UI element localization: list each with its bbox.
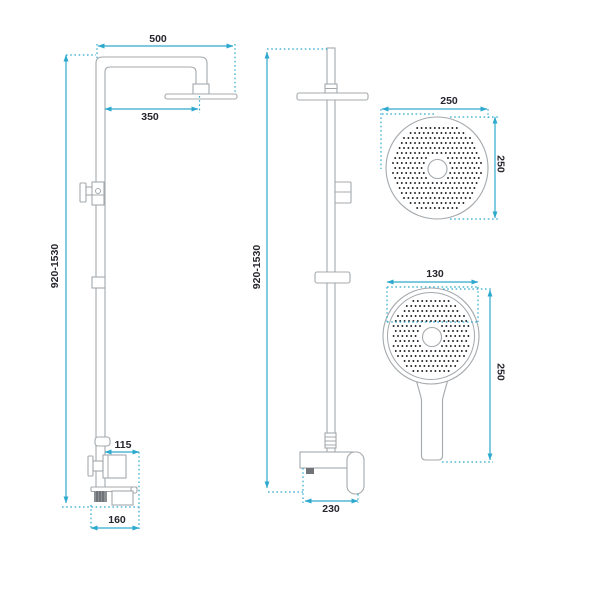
- dim-head-width-label: 250: [440, 96, 458, 107]
- front-view: [297, 48, 368, 494]
- shower-head-plate-side: [165, 94, 237, 99]
- dim-side-500-label: 500: [149, 34, 167, 45]
- pipe-connector-side: [92, 277, 105, 288]
- technical-drawing: [0, 0, 600, 600]
- mixer-knob-cap-side: [88, 456, 93, 476]
- slider-knob-cap-side: [80, 183, 86, 202]
- spout-outlet-front: [306, 468, 314, 474]
- hand-shower-view: [383, 288, 479, 460]
- mixer-knob-stem-side: [93, 461, 103, 471]
- dim-side-160-label: 160: [108, 515, 126, 526]
- dim-side-350-label: 350: [141, 112, 159, 123]
- shower-head-plate-front: [297, 93, 368, 100]
- arm-nut-side: [193, 84, 209, 94]
- dim-side-115-label: 115: [115, 440, 132, 451]
- dim-hand-length-label: 250: [495, 363, 506, 381]
- dim-front-height-label: 920-1530: [252, 245, 263, 289]
- mixer-handle-front: [347, 452, 364, 494]
- hand-center-cap: [423, 328, 442, 347]
- mixer-body-front: [300, 452, 353, 468]
- shower-pipe-front: [327, 48, 335, 453]
- dim-hand-width-label: 130: [426, 269, 444, 280]
- soap-dish-front: [315, 272, 350, 283]
- dim-head-height-label: 250: [495, 155, 506, 173]
- overhead-center-cap: [428, 160, 447, 179]
- side-view: [80, 57, 237, 505]
- diagram-canvas: 920-1530 500 350 115 160 920-1530 230 25…: [0, 0, 600, 600]
- mixer-lower-body-side: [112, 491, 133, 505]
- hand-shower-handle: [414, 372, 450, 460]
- handshower-holder-side: [95, 437, 110, 446]
- dim-front-230-label: 230: [322, 504, 340, 515]
- dim-side-height-label: 920-1530: [50, 244, 61, 288]
- overhead-shower-top-view: [386, 117, 488, 219]
- mixer-body-side: [103, 455, 126, 478]
